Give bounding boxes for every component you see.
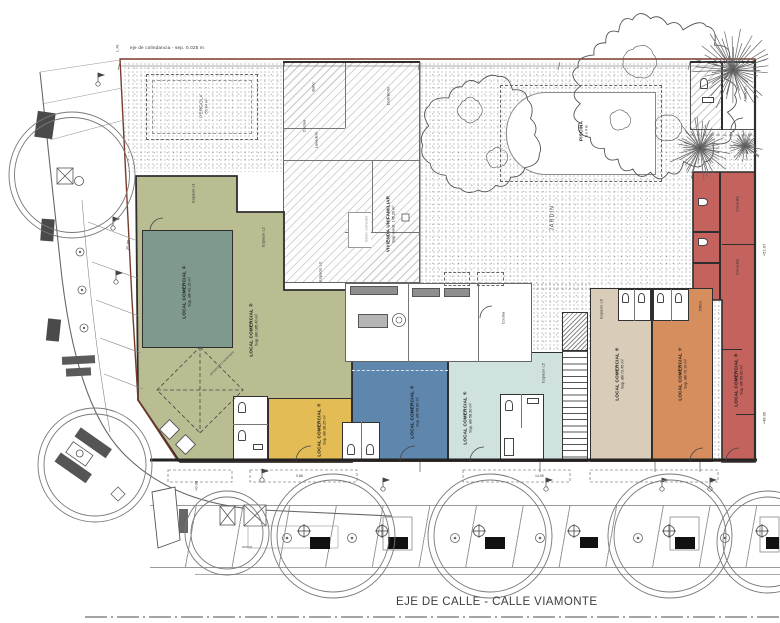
kitchen-counter [444,288,470,297]
dwelling-partition [345,62,346,128]
shower-fixture [504,438,514,456]
space-label-e1: Espacio L1 [191,183,196,203]
toilet-fixture [700,78,708,89]
space-label-e6: Espacio L6 [599,299,604,319]
dim-label-4: 14.95 [535,474,544,478]
dwelling-partition [372,160,373,232]
boundary-label: eje de colindancia - sep. 0.025 m [130,45,204,50]
toilet-fixture [638,293,645,303]
room-label-laundry: Lavadero [314,132,319,149]
entry-vestibule [159,419,180,440]
room-label-office: Office [698,301,703,311]
dim-label-1: +52.07 [762,244,767,256]
room-label-bedroom: Dormitorio [386,87,391,105]
toilet-fixture [238,430,246,441]
local8-partition [693,262,720,264]
lm-label: L.M. [115,44,120,52]
dwelling-partition [283,160,420,161]
room-label-consulta1: Consulta [735,196,740,212]
local-3-label: LOCAL COMERCIAL ③ Sup. útil 38.25 m² [316,403,327,456]
room-label-kitchen: Cocina [302,120,307,132]
local-8-label: LOCAL COMERCIAL ⑧ Sup. útil 95.60 m² [733,353,744,406]
utility-bath-hatch [691,63,721,129]
street-curb-line [195,574,780,575]
wc-partition [361,422,362,462]
left-benches [34,111,95,377]
local-7-label: LOCAL COMERCIAL ⑦ Sup. útil 70.10 m² [677,347,688,400]
local8-partition [736,414,755,415]
local8-partition [719,172,721,300]
laundry-appliance [358,314,388,328]
local-5-label: LOCAL COMERCIAL ⑤ Sup. útil 58.30 m² [462,391,473,444]
local-7-area: Sup. útil 70.10 m² [684,347,689,400]
local-2-area: Sup. útil 185.40 m² [255,303,260,356]
street-axis-label: EJE DE CALLE - CALLE VIAMONTE [396,596,597,608]
space-label-e5: Espacio L5 [541,363,546,383]
counter-overhead-dashed [444,272,470,286]
dwelling-label: VIVIENDA UNIFAMILIAR Sup. const. 145.20 … [385,196,396,252]
local-3-area: Sup. útil 38.25 m² [323,403,328,456]
skylight-label: proyección lucernario [209,350,235,376]
site-plan-drawing: eje de colindancia - sep. 0.025 m L.M. E… [0,0,780,623]
dim-label-5: 9.88 [296,474,303,478]
space-label-e2: Espacio L2 [261,227,266,247]
local-3-room [268,398,352,462]
toilet-fixture [698,198,708,206]
toilet-fixture [657,293,664,303]
room-label-consulta2: Consulta [735,259,740,275]
local-8-area: Sup. útil 95.60 m² [740,353,745,406]
toilet-fixture [698,238,708,246]
local-6-label: LOCAL COMERCIAL ⑥ Sup. útil 72.45 m² [614,347,625,400]
local-1-area: Sup. útil 42.15 m² [188,265,193,318]
sink-fixture [702,97,714,103]
wc-partition [634,289,635,321]
dim-label-3: 25.89 [125,240,131,250]
pool-dim: 8 x 4 m [585,121,590,141]
dim-label-6: +0.00 [194,481,199,491]
left-parking-dividers [88,222,143,389]
local8-partition [693,231,720,233]
counter-overhead-dashed [477,272,504,286]
toilet-fixture [622,293,629,303]
local8-partition [722,244,755,245]
street-parking-band [150,505,780,568]
staircase [562,350,588,462]
toilet-fixture [347,444,355,455]
dwelling-partition [283,128,345,129]
dim-label-2: +48.05 [762,412,767,424]
sink-fixture [527,398,539,404]
wc-partition [521,394,522,428]
stair-ramp [562,312,588,351]
garden-label: JARDIN [549,205,556,231]
pool-label: PISCINA 8 x 4 m [578,121,589,141]
service-partition [478,283,479,362]
wc-partition [671,289,672,321]
left-parking-markers [76,248,88,332]
room-label-storage: Almacén [743,86,748,102]
sink-fixture [253,444,263,450]
sidewalk-label: acera [242,544,252,549]
dwelling-area: Sup. const. 145.20 m² [392,196,397,252]
local-6-area: Sup. útil 72.45 m² [621,347,626,400]
local-2-label: LOCAL COMERCIAL ② Sup. útil 185.40 m² [248,303,259,356]
sidewalk-dim-boxes [168,470,718,482]
dwelling-block [283,62,420,283]
kitchen-counter [412,288,440,297]
pergola-area: 55.04 m² [205,94,210,118]
toilet-fixture [238,402,246,413]
space-label-e3: Espacio L3 [318,262,323,282]
local-4-area: Sup. útil 65.80 m² [416,385,421,438]
room-label-bath: Baño [311,82,316,91]
local-1-label: LOCAL COMERCIAL ① Sup. útil 42.15 m² [181,265,192,318]
room-label-living: Salón comedor [364,216,369,243]
utility-partition [721,62,723,130]
side-gap-strip [713,300,722,462]
pergola-label: PÉRGOLA 55.04 m² [198,94,209,118]
toilet-fixture [505,400,513,411]
entry-vestibule [175,434,196,455]
local-5-area: Sup. útil 58.30 m² [469,391,474,444]
toilet-fixture [675,293,682,303]
tree-equipment-box [57,168,84,186]
kitchen-counter [350,286,398,295]
service-partition [408,283,409,362]
plaza-benches [54,426,111,484]
local-4-dashed-line [352,370,448,371]
wc-partition [233,424,268,425]
toilet-fixture [366,444,374,455]
facade-ticks [420,462,700,472]
local-4-label: LOCAL COMERCIAL ④ Sup. útil 65.80 m² [409,385,420,438]
room-label-kitchen2: Cocina [501,312,506,324]
local8-partition [722,349,742,350]
